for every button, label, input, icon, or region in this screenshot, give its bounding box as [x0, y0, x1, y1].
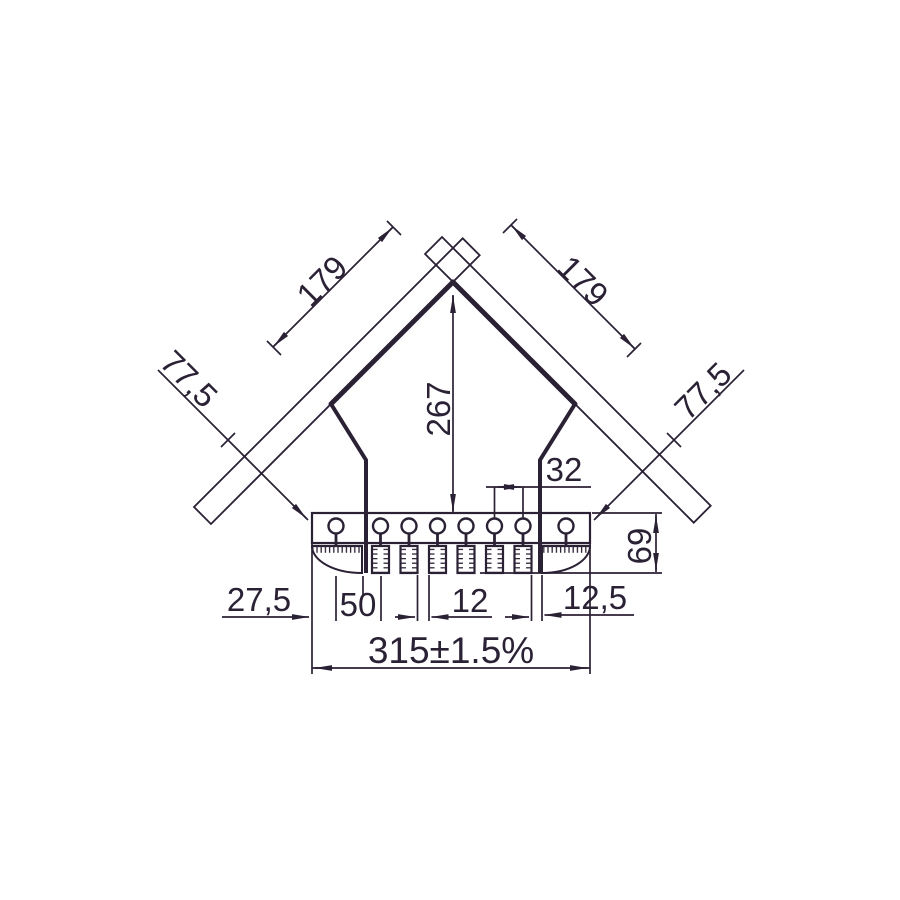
dim-label-27-5: 27,5 — [227, 581, 291, 618]
technical-drawing-canvas: 267 179 179 77,5 77,5 32 — [0, 0, 900, 900]
brush-segment-3 — [429, 546, 446, 573]
brush-segment-2 — [401, 546, 418, 573]
dim-label-12-5: 12,5 — [563, 579, 627, 616]
brush-segment-1 — [372, 546, 389, 573]
brush-segment-5 — [486, 546, 503, 573]
dim-label-69: 69 — [621, 528, 658, 565]
dim-label-12: 12 — [452, 582, 489, 619]
dim-label-315: 315±1.5% — [368, 630, 534, 671]
dim-first-hole-spacing: 50 — [340, 586, 377, 623]
dim-label-267: 267 — [420, 381, 457, 436]
dim-label-32: 32 — [546, 451, 583, 488]
base-channel — [312, 513, 590, 543]
brush-segment-4 — [458, 546, 475, 573]
dim-label-50: 50 — [340, 586, 377, 623]
corner-profile-drawing: 267 179 179 77,5 77,5 32 — [0, 0, 900, 900]
background — [0, 0, 900, 900]
brush-segment-6 — [515, 546, 532, 573]
